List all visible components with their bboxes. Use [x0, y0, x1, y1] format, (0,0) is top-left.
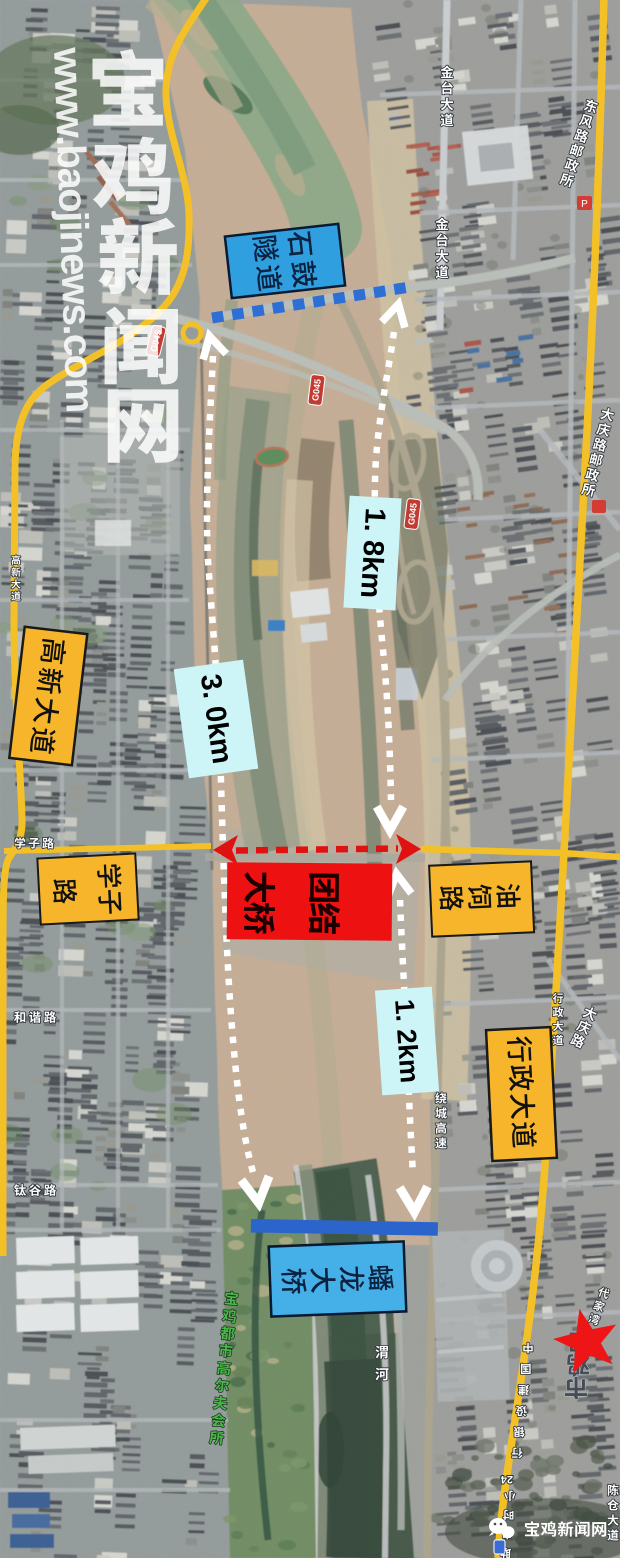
svg-text:P: P [581, 199, 588, 210]
svg-text:24: 24 [500, 1473, 513, 1485]
svg-text:1. 2km: 1. 2km [389, 998, 425, 1084]
svg-text:1. 8km: 1. 8km [354, 507, 391, 599]
